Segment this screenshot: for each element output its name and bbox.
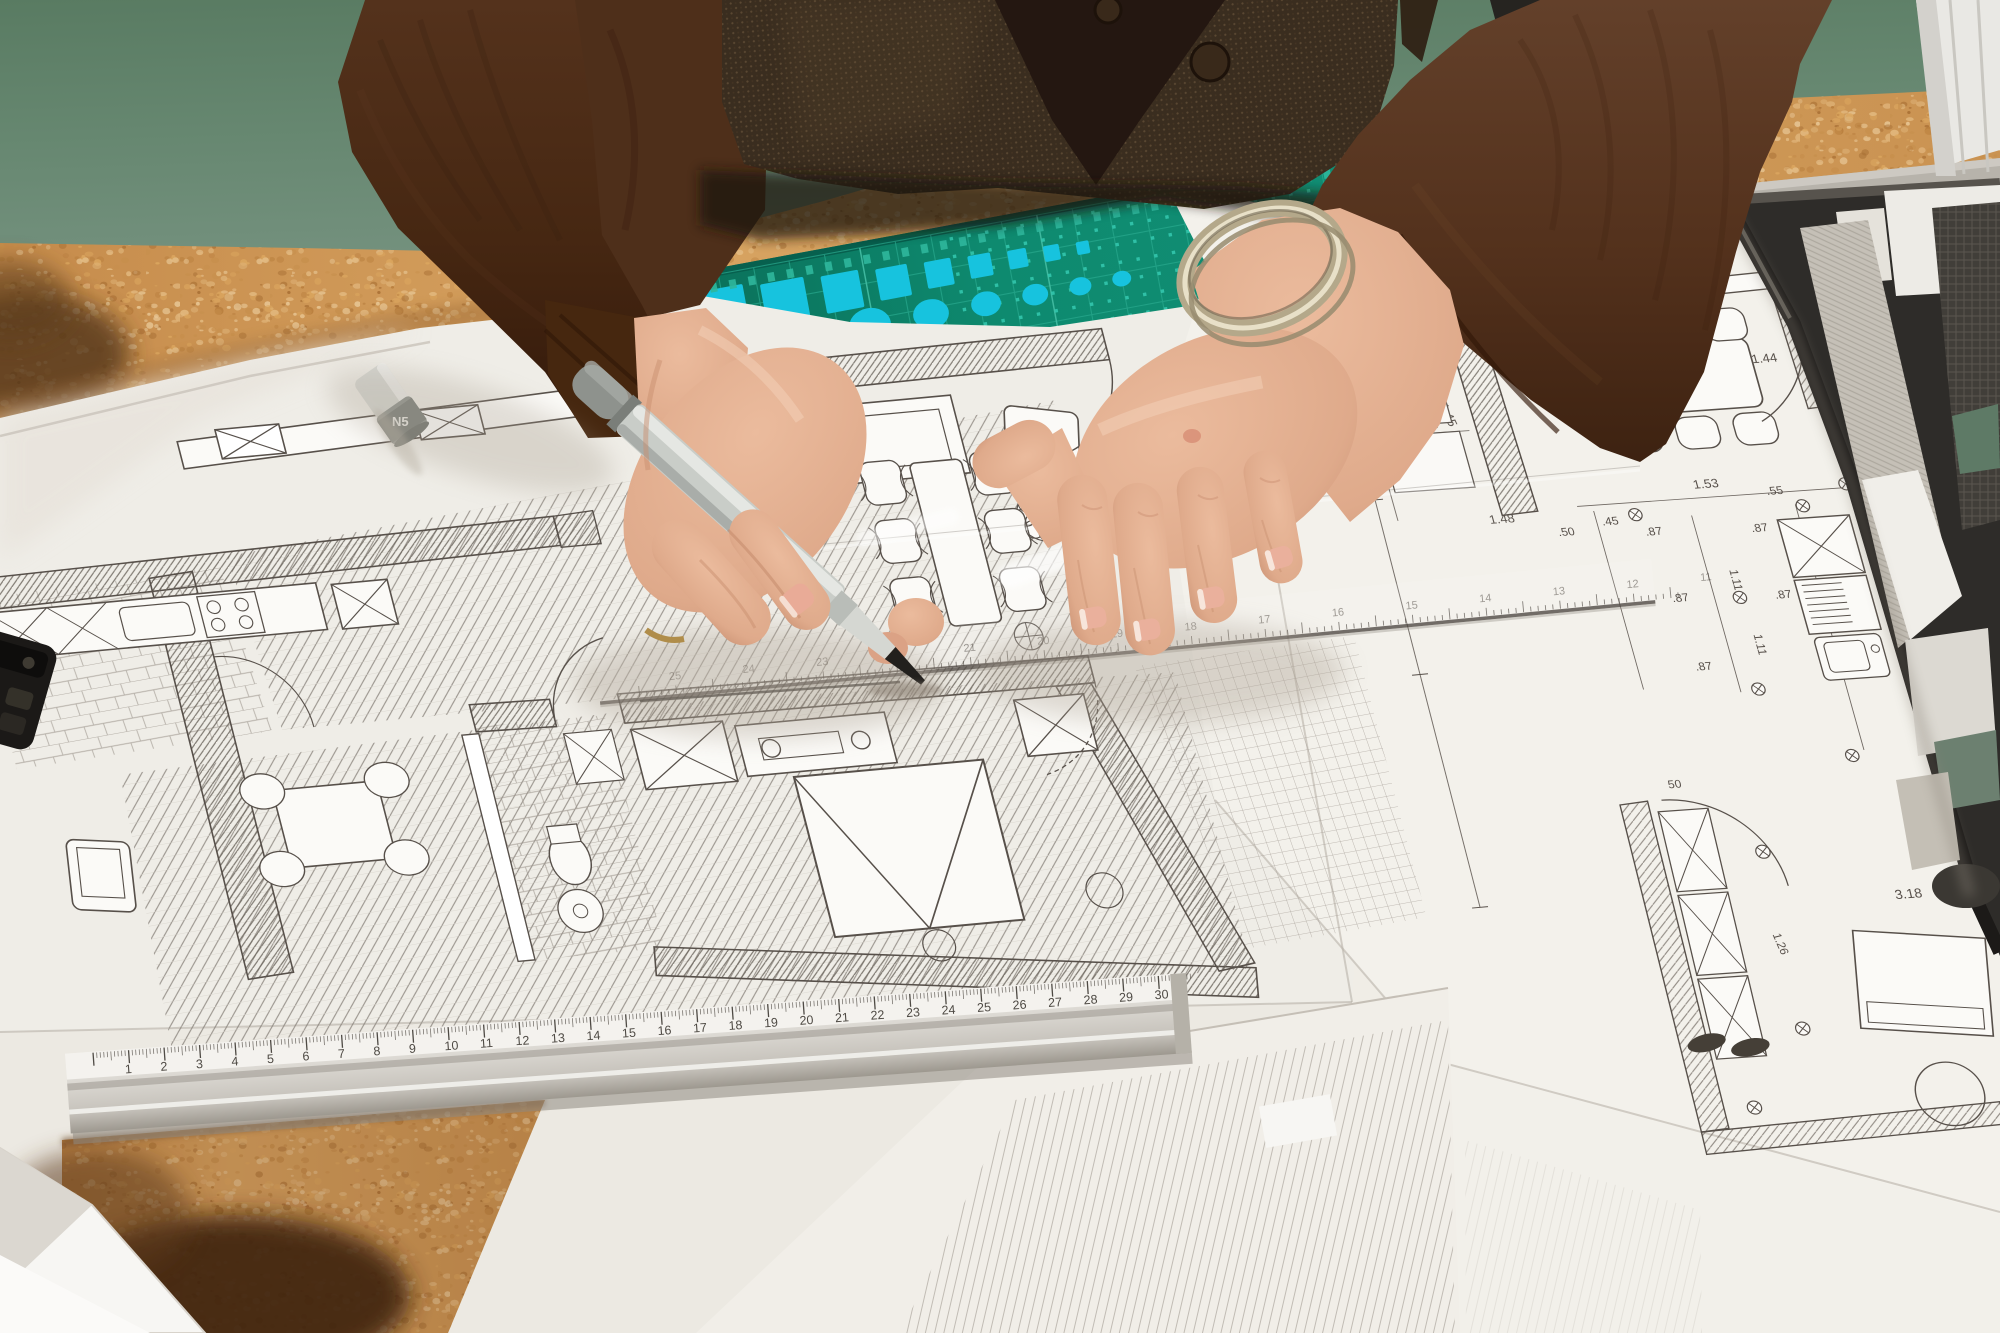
svg-text:13: 13 bbox=[551, 1031, 566, 1046]
svg-text:29: 29 bbox=[1119, 990, 1134, 1005]
svg-text:12: 12 bbox=[1626, 578, 1639, 591]
svg-text:.87: .87 bbox=[1644, 525, 1664, 538]
svg-text:7: 7 bbox=[337, 1047, 345, 1061]
svg-text:.87: .87 bbox=[1670, 591, 1690, 604]
svg-text:27: 27 bbox=[1048, 995, 1063, 1010]
svg-text:.87: .87 bbox=[1773, 588, 1793, 601]
svg-text:14: 14 bbox=[586, 1028, 601, 1043]
svg-text:22: 22 bbox=[870, 1008, 885, 1023]
svg-text:.87: .87 bbox=[1750, 521, 1770, 534]
svg-text:17: 17 bbox=[1258, 613, 1271, 626]
svg-text:9: 9 bbox=[408, 1042, 416, 1056]
svg-text:1.48: 1.48 bbox=[1487, 511, 1516, 527]
svg-text:18: 18 bbox=[728, 1018, 743, 1033]
svg-text:12: 12 bbox=[515, 1033, 530, 1048]
svg-text:16: 16 bbox=[1331, 606, 1344, 619]
svg-text:3.18: 3.18 bbox=[1893, 886, 1924, 902]
svg-text:21: 21 bbox=[835, 1010, 850, 1025]
svg-text:15: 15 bbox=[622, 1026, 637, 1041]
svg-text:2: 2 bbox=[160, 1059, 168, 1073]
svg-text:6: 6 bbox=[302, 1049, 310, 1063]
svg-text:3: 3 bbox=[195, 1057, 203, 1071]
svg-text:26: 26 bbox=[1012, 998, 1027, 1013]
svg-text:13: 13 bbox=[1552, 585, 1565, 598]
svg-text:17: 17 bbox=[693, 1021, 708, 1036]
svg-text:19: 19 bbox=[764, 1015, 779, 1030]
svg-text:5: 5 bbox=[266, 1052, 274, 1066]
svg-text:30: 30 bbox=[1154, 987, 1169, 1002]
svg-text:1.53: 1.53 bbox=[1691, 476, 1720, 492]
svg-text:15: 15 bbox=[1405, 599, 1418, 612]
svg-text:14: 14 bbox=[1479, 592, 1492, 605]
svg-text:8: 8 bbox=[373, 1044, 381, 1058]
svg-text:23: 23 bbox=[906, 1005, 921, 1020]
svg-text:28: 28 bbox=[1083, 992, 1098, 1007]
svg-text:10: 10 bbox=[444, 1038, 459, 1053]
svg-text:11: 11 bbox=[1700, 571, 1713, 584]
svg-text:4: 4 bbox=[231, 1054, 239, 1068]
svg-text:24: 24 bbox=[941, 1003, 956, 1018]
svg-text:1: 1 bbox=[124, 1062, 132, 1076]
svg-text:1.44: 1.44 bbox=[1750, 350, 1779, 366]
svg-text:21: 21 bbox=[963, 642, 976, 655]
svg-text:.87: .87 bbox=[1694, 660, 1714, 673]
svg-text:11: 11 bbox=[479, 1036, 493, 1051]
svg-text:25: 25 bbox=[977, 1000, 992, 1015]
svg-text:16: 16 bbox=[657, 1023, 672, 1038]
svg-text:20: 20 bbox=[799, 1013, 814, 1028]
